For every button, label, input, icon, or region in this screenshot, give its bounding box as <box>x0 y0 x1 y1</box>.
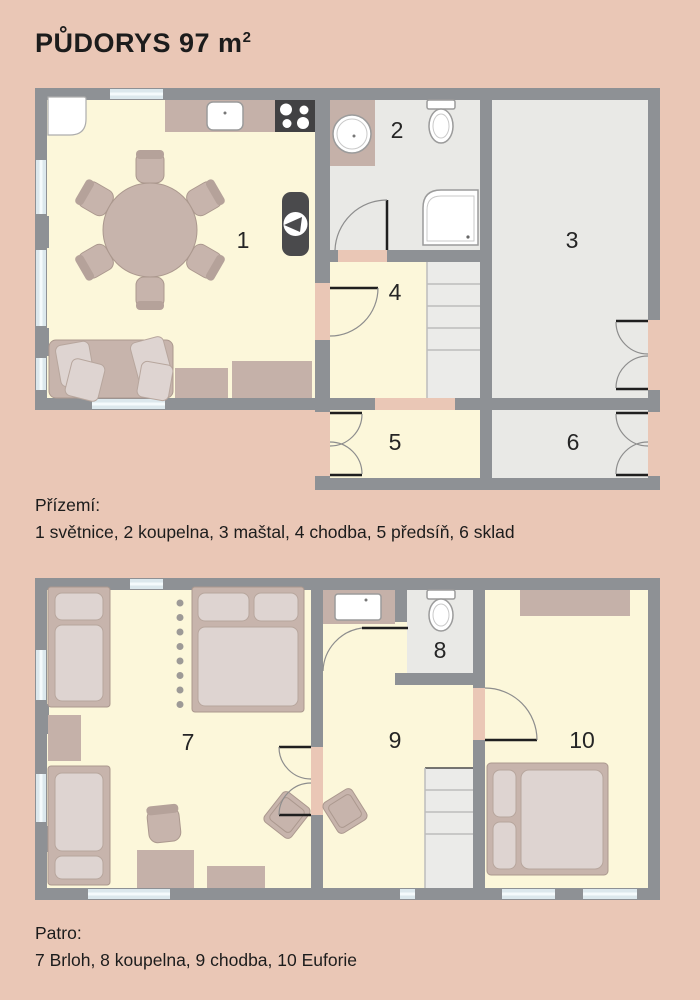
room-label-6: 6 <box>567 429 580 455</box>
double-bed <box>192 587 304 712</box>
cushion <box>136 360 174 401</box>
title-superscript: 2 <box>243 29 252 46</box>
washbasin-icon <box>333 115 371 153</box>
floorplan-page: PŮDORYS 97 m2 <box>0 0 700 1000</box>
ground-floor-caption: Přízemí: 1 světnice, 2 koupelna, 3 mašta… <box>35 492 515 546</box>
desk <box>137 850 194 888</box>
stairs <box>427 262 480 398</box>
corner-cabinet <box>48 97 86 135</box>
kitchen-counter <box>165 100 315 132</box>
washbasin-icon <box>335 594 381 620</box>
room-label-5: 5 <box>389 429 402 455</box>
title-text: PŮDORYS 97 m <box>35 28 243 58</box>
double-bed-euforie <box>487 763 608 875</box>
upper-floor-caption: Patro: 7 Brloh, 8 koupelna, 9 chodba, 10… <box>35 920 357 974</box>
bench <box>175 368 228 398</box>
room-label-7: 7 <box>182 729 195 755</box>
room-label-3: 3 <box>566 227 579 253</box>
floor-plan-ground: 1 2 3 4 5 6 <box>35 88 660 490</box>
kitchen-sink-icon <box>207 102 243 130</box>
room-label-9: 9 <box>389 727 402 753</box>
cooktop-icon <box>275 100 315 132</box>
upper-floor-caption-rooms: 7 Brloh, 8 koupelna, 9 chodba, 10 Eufori… <box>35 947 357 974</box>
toilet-icon <box>427 590 455 631</box>
wood-stove-icon <box>282 192 309 256</box>
sideboard <box>232 361 312 398</box>
room-label-4: 4 <box>389 279 402 305</box>
low-table <box>207 866 265 888</box>
room-label-1: 1 <box>237 227 250 253</box>
desk-chair <box>146 803 182 843</box>
single-bed-top <box>48 587 110 707</box>
nightstand <box>48 715 81 761</box>
ground-floor-caption-rooms: 1 světnice, 2 koupelna, 3 maštal, 4 chod… <box>35 519 515 546</box>
dining-table <box>103 183 197 277</box>
room-label-8: 8 <box>434 637 447 663</box>
page-title: PŮDORYS 97 m2 <box>35 28 251 59</box>
room-label-2: 2 <box>391 117 404 143</box>
sofa <box>49 335 174 402</box>
ground-floor-caption-title: Přízemí: <box>35 492 515 519</box>
room-label-10: 10 <box>569 727 595 753</box>
dining-chair <box>136 277 164 310</box>
toilet-icon <box>427 100 455 143</box>
upper-floor-caption-title: Patro: <box>35 920 357 947</box>
shower-icon <box>423 190 478 245</box>
room-predsin-floor <box>330 410 480 478</box>
single-bed-bottom <box>48 766 110 885</box>
dining-chair <box>136 150 164 183</box>
wardrobe <box>520 590 630 616</box>
floor-plan-upper: 7 8 9 10 <box>35 578 660 900</box>
stairs <box>425 768 473 888</box>
